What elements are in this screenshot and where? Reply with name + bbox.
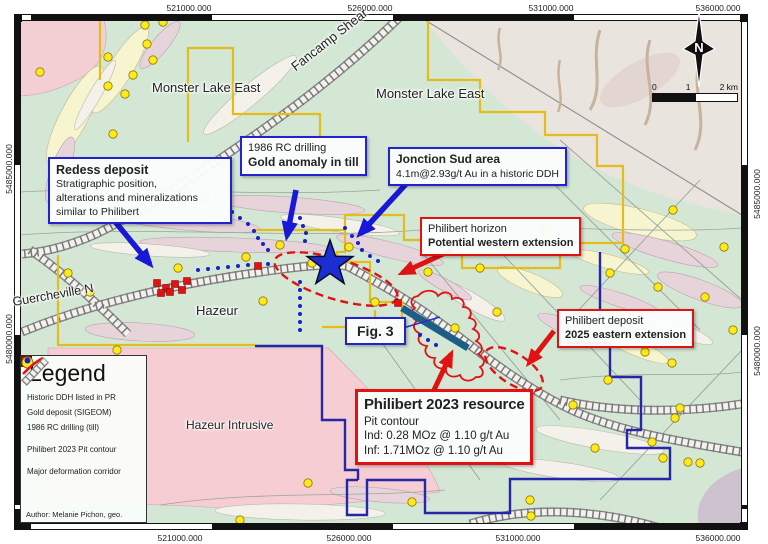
map-frame-bottom	[14, 523, 748, 530]
callout-resource-line: Pit contour	[364, 415, 524, 430]
coord-label-bottom: 526000.000	[321, 533, 377, 543]
callout-jonction-line2: 4.1m@2.93g/t Au in a historic DDH	[396, 168, 559, 182]
legend-item-historic-ddh: Historic DDH listed in PR	[27, 393, 140, 402]
callout-redess-deposit: Redess deposit Stratigraphic position, a…	[48, 157, 232, 224]
callout-rc-drilling: 1986 RC drilling Gold anomaly in till	[240, 136, 367, 176]
legend-author: Author: Melanie Pichon, geo.	[26, 510, 122, 519]
callout-horizon-line1: Philibert horizon	[428, 222, 573, 236]
callout-philibert-deposit: Philibert deposit 2025 eastern extension	[557, 309, 694, 348]
region-label-monster-lake-east-2: Monster Lake East	[376, 86, 484, 101]
coord-label-left: 5480000.000	[4, 311, 14, 367]
callout-rc-line2: Gold anomaly in till	[248, 155, 359, 171]
scale-tick: 2 km	[720, 82, 738, 92]
frame-corner	[740, 522, 748, 530]
coord-label-bottom: 531000.000	[490, 533, 546, 543]
callout-fig3: Fig. 3	[345, 317, 406, 345]
deformation-corridor-swatch-icon	[21, 356, 51, 386]
region-label-hazeur: Hazeur	[196, 303, 238, 318]
coord-label-bottom: 536000.000	[690, 533, 746, 543]
callout-resource-title: Philibert 2023 resource	[364, 395, 524, 415]
frame-corner	[740, 14, 748, 22]
coord-label-right: 5485000.000	[752, 166, 762, 222]
legend-item-label: 1986 RC drilling (till)	[27, 423, 99, 432]
north-arrow-label: N	[682, 40, 716, 55]
map-figure: 521000.000 526000.000 531000.000 536000.…	[0, 0, 768, 544]
region-label-hazeur-intrusive: Hazeur Intrusive	[186, 418, 273, 432]
callout-resource-line: Ind: 0.28 MOz @ 1.10 g/t Au	[364, 429, 524, 444]
callout-philibert-horizon: Philibert horizon Potential western exte…	[420, 217, 581, 256]
callout-rc-line1: 1986 RC drilling	[248, 141, 359, 155]
legend-item-rc-drilling: 1986 RC drilling (till)	[27, 423, 140, 432]
callout-redess-body-line: similar to Philibert	[56, 206, 224, 220]
scale-tick: 1	[686, 82, 691, 92]
map-frame-right	[741, 14, 748, 530]
callout-horizon-line2: Potential western extension	[428, 236, 573, 250]
callout-redess-body-line: Stratigraphic position,	[56, 178, 224, 192]
callout-jonction-line1: Jonction Sud area	[396, 152, 559, 168]
callout-philibert-resource: Philibert 2023 resource Pit contour Ind:…	[355, 389, 533, 465]
frame-corner	[14, 14, 22, 22]
scale-tick: 0	[652, 82, 657, 92]
legend-item-label: Major deformation corridor	[27, 467, 121, 476]
coord-label-top: 521000.000	[161, 3, 217, 13]
coord-label-bottom: 521000.000	[152, 533, 208, 543]
legend-box: Legend Historic DDH listed in PR Gold de…	[20, 355, 147, 523]
coord-label-top: 531000.000	[523, 3, 579, 13]
callout-fig3-label: Fig. 3	[357, 323, 394, 339]
legend-item-label: Philibert 2023 Pit contour	[27, 445, 116, 454]
callout-redess-body-line: alterations and mineralizations	[56, 192, 224, 206]
legend-item-label: Gold deposit (SIGEOM)	[27, 408, 111, 417]
legend-item-gold-deposit: Gold deposit (SIGEOM)	[27, 408, 140, 417]
legend-item-pit-contour: Philibert 2023 Pit contour	[27, 445, 140, 454]
callout-deposit-line2: 2025 eastern extension	[565, 328, 686, 342]
callout-jonction-sud: Jonction Sud area 4.1m@2.93g/t Au in a h…	[388, 147, 567, 186]
coord-label-top: 526000.000	[342, 3, 398, 13]
legend-item-deformation-corridor: Major deformation corridor	[27, 467, 140, 476]
legend-item-label: Historic DDH listed in PR	[27, 393, 116, 402]
coord-label-right: 5480000.000	[752, 323, 762, 379]
scale-bar: 0 1 2 km	[652, 82, 738, 102]
coord-label-left: 5485000.000	[4, 141, 14, 197]
callout-resource-line: Inf: 1.71MOz @ 1.10 g/t Au	[364, 444, 524, 459]
scale-bar-graphic	[652, 93, 738, 102]
frame-corner	[14, 522, 22, 530]
north-arrow: N	[682, 10, 716, 88]
callout-redess-title: Redess deposit	[56, 162, 224, 178]
map-frame-top	[14, 14, 748, 21]
callout-deposit-line1: Philibert deposit	[565, 314, 686, 328]
region-label-monster-lake-east-1: Monster Lake East	[152, 80, 260, 95]
